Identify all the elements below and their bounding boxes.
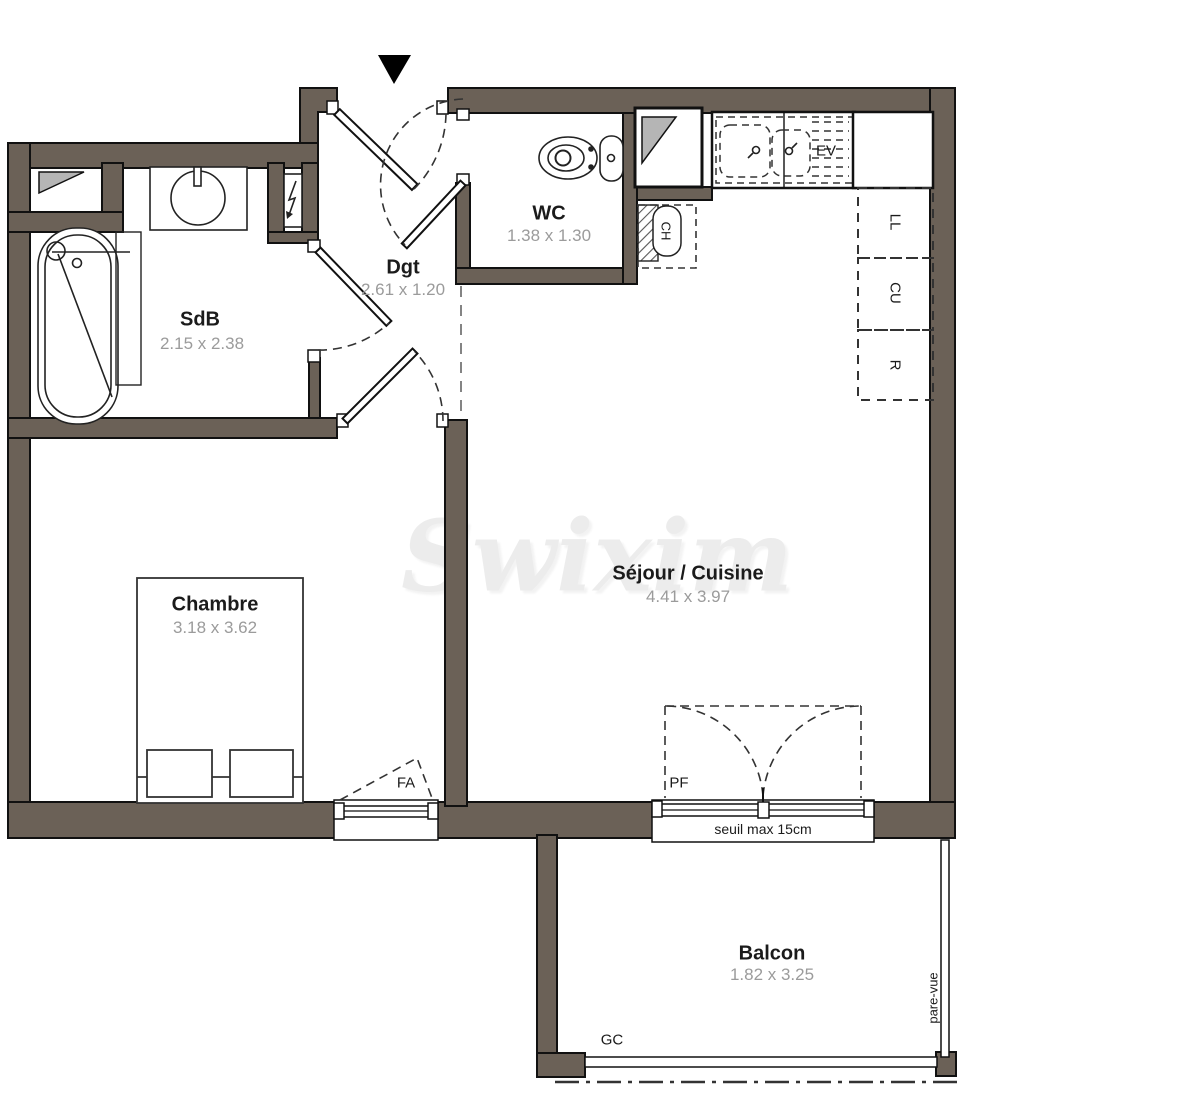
fridge-label: R [887, 360, 904, 371]
privacy-screen-label: pare-vue [926, 972, 941, 1023]
labels-layer: SdB 2.15 x 2.38 Dgt 2.61 x 1.20 WC 1.38 … [0, 0, 1204, 1113]
room-name-sejour: Séjour / Cuisine [612, 563, 763, 586]
threshold-label: seuil max 15cm [714, 821, 811, 837]
cooktop-label: CU [887, 282, 904, 304]
washing-machine-label: LL [887, 214, 904, 231]
room-name-sdb: SdB [180, 309, 220, 332]
sink-label: EV [816, 143, 836, 160]
room-dims-sejour: 4.41 x 3.97 [646, 587, 730, 607]
room-name-dgt: Dgt [386, 257, 419, 280]
room-dims-sdb: 2.15 x 2.38 [160, 334, 244, 354]
room-name-wc: WC [532, 203, 565, 226]
guardrail-label: GC [601, 1032, 624, 1049]
window-fa-label: FA [397, 775, 415, 792]
room-dims-wc: 1.38 x 1.30 [507, 226, 591, 246]
room-dims-balcon: 1.82 x 3.25 [730, 965, 814, 985]
window-pf-label: PF [669, 775, 688, 792]
apartment-floor-plan: Swixim [0, 0, 1204, 1113]
room-name-balcon: Balcon [739, 943, 806, 966]
room-name-chambre: Chambre [172, 594, 259, 617]
room-dims-dgt: 2.61 x 1.20 [361, 280, 445, 300]
water-heater-label: CH [659, 222, 674, 241]
room-dims-chambre: 3.18 x 3.62 [173, 618, 257, 638]
